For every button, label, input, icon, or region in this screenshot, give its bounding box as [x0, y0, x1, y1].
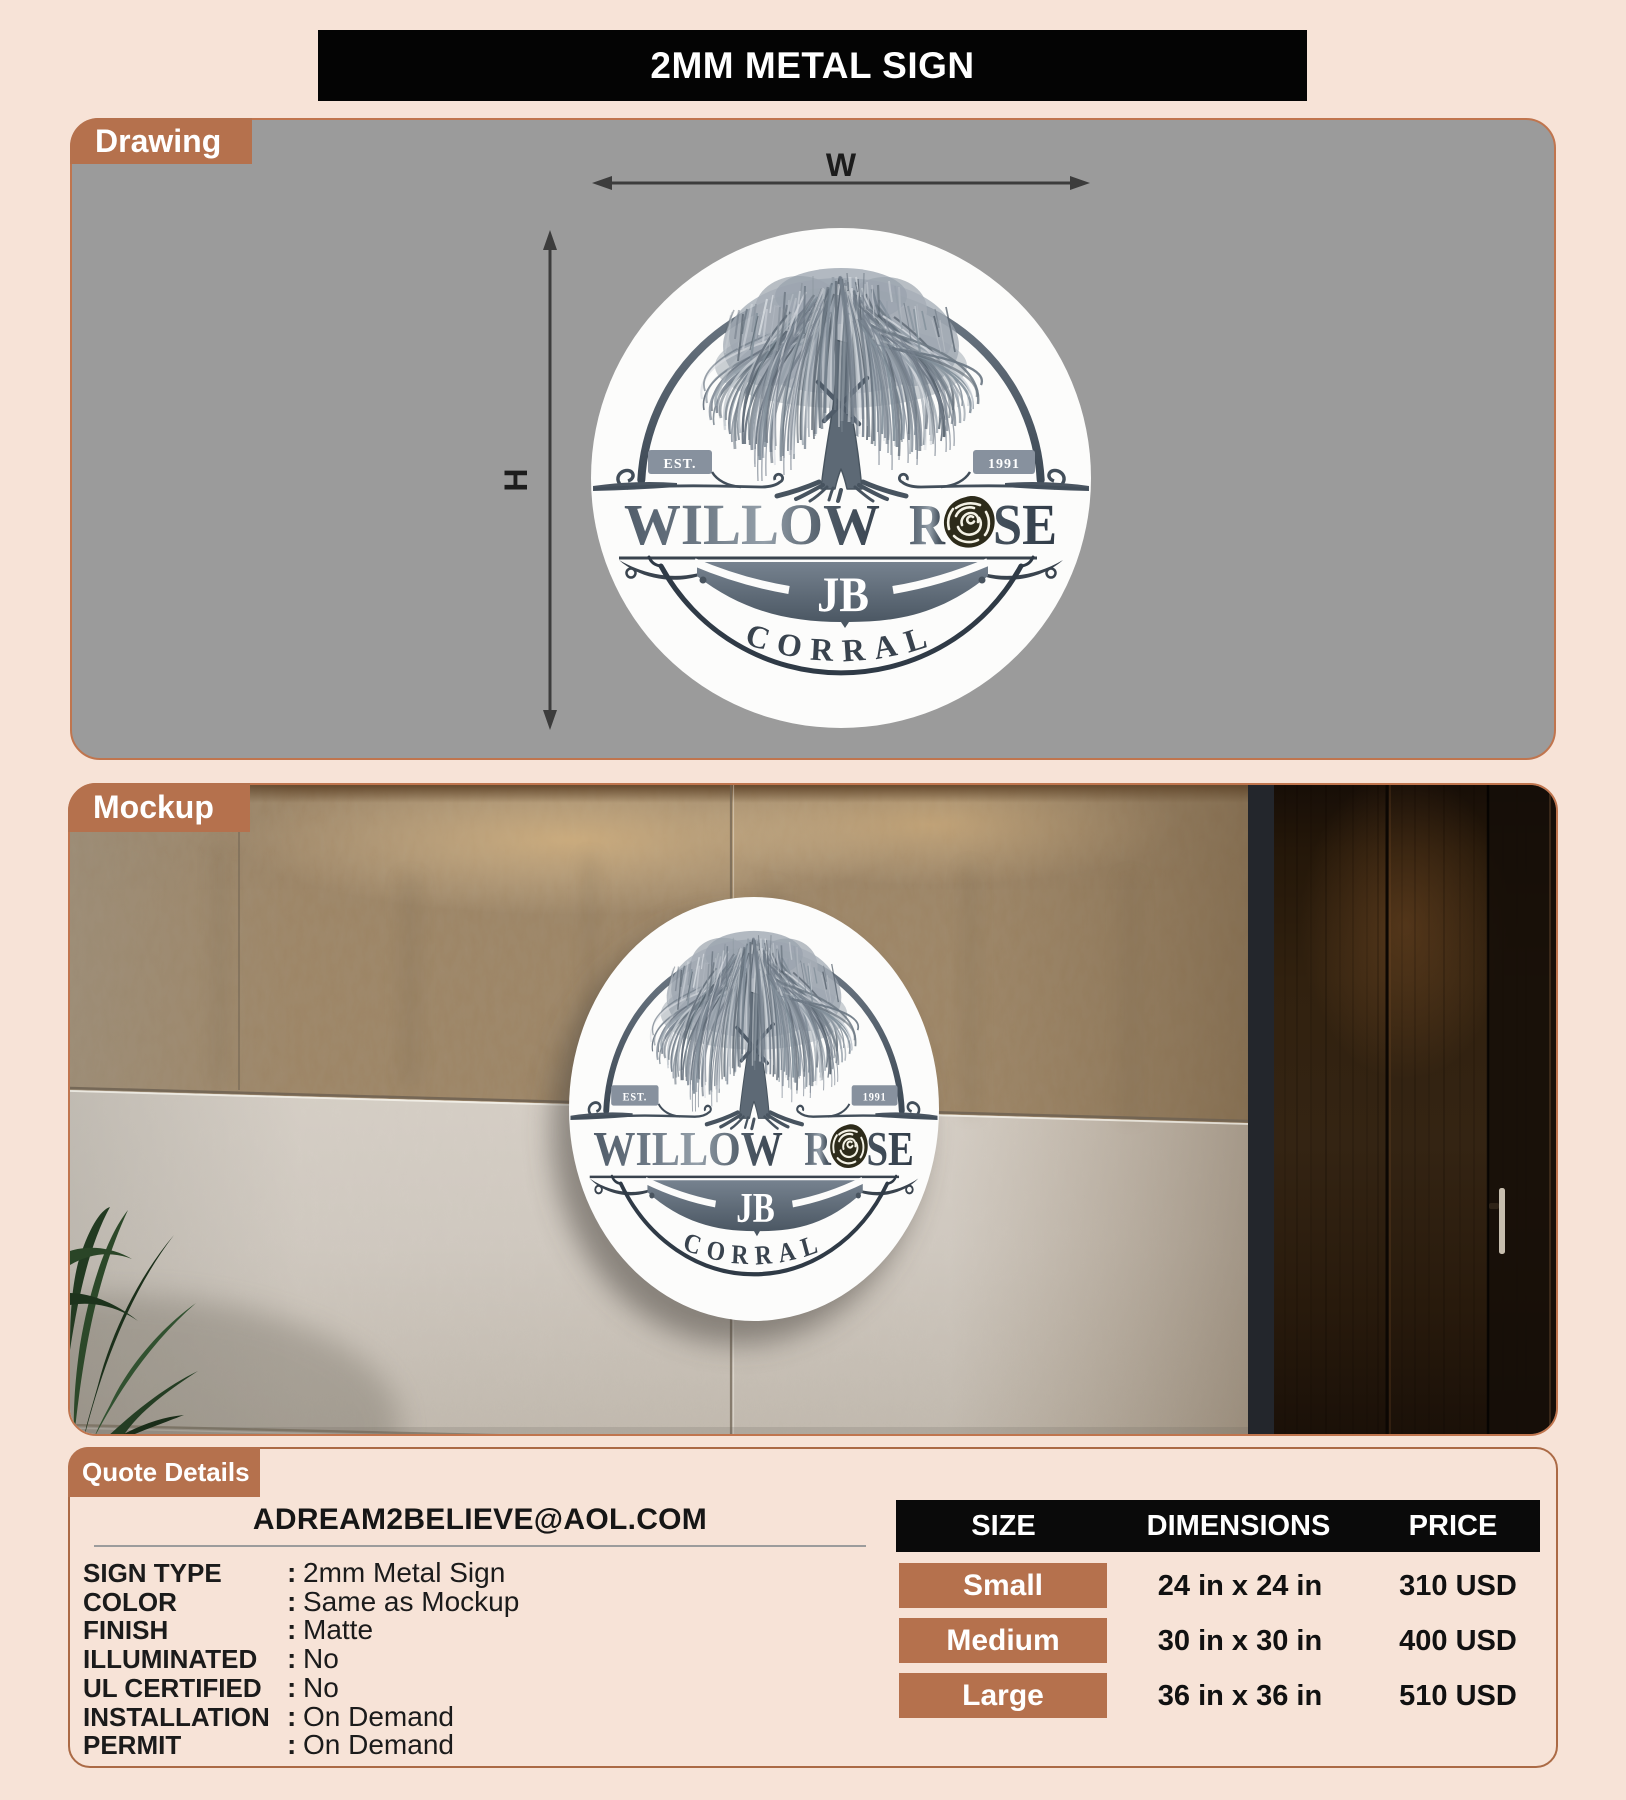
svg-text:W: W — [826, 147, 857, 183]
svg-text:H: H — [498, 468, 534, 491]
